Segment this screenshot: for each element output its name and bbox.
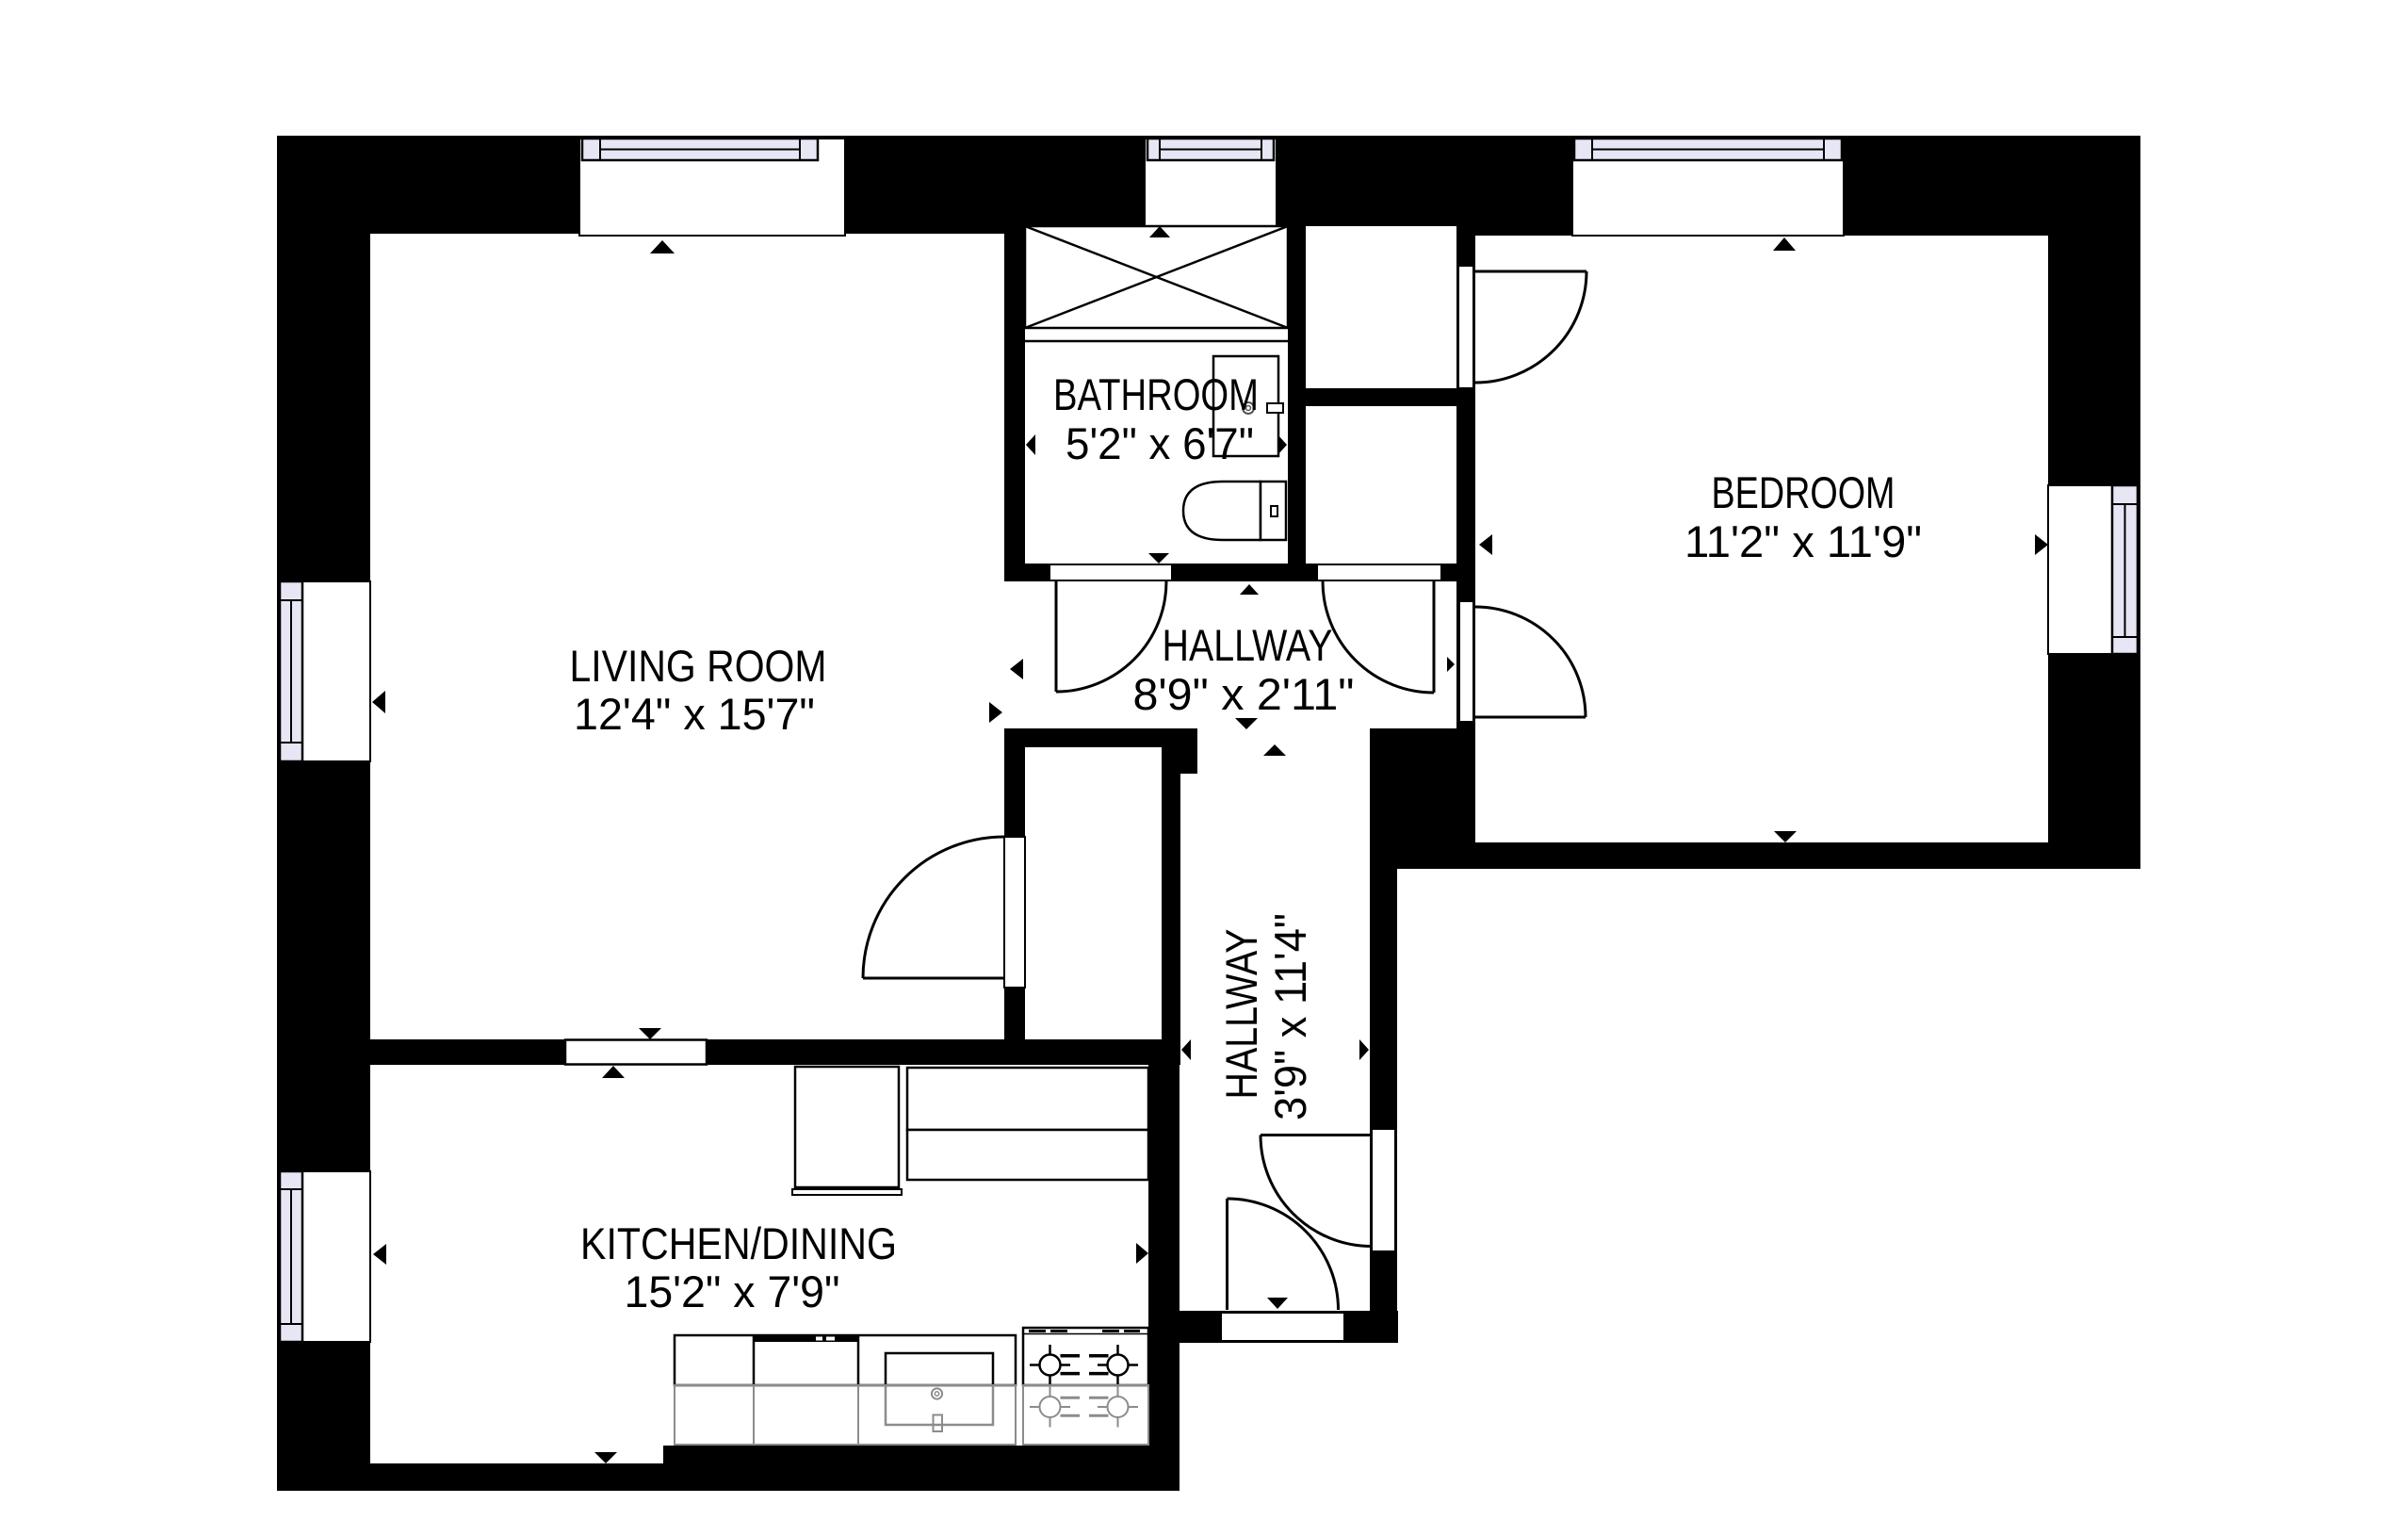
- svg-text:15'2" x 7'9": 15'2" x 7'9": [625, 1266, 840, 1316]
- svg-text:11'2" x 11'9": 11'2" x 11'9": [1684, 516, 1922, 566]
- svg-text:12'4" x 15'7": 12'4" x 15'7": [574, 689, 815, 739]
- svg-text:3'9" x 11'4": 3'9" x 11'4": [1265, 913, 1315, 1120]
- svg-text:LIVING ROOM: LIVING ROOM: [570, 641, 827, 691]
- svg-text:BEDROOM: BEDROOM: [1712, 467, 1895, 517]
- svg-text:BATHROOM: BATHROOM: [1053, 369, 1259, 419]
- svg-text:8'9" x 2'11": 8'9" x 2'11": [1133, 669, 1355, 719]
- svg-text:HALLWAY: HALLWAY: [1163, 620, 1333, 670]
- svg-text:HALLWAY: HALLWAY: [1216, 929, 1266, 1100]
- svg-text:KITCHEN/DINING: KITCHEN/DINING: [580, 1218, 897, 1268]
- svg-text:5'2" x 6'7": 5'2" x 6'7": [1066, 418, 1254, 468]
